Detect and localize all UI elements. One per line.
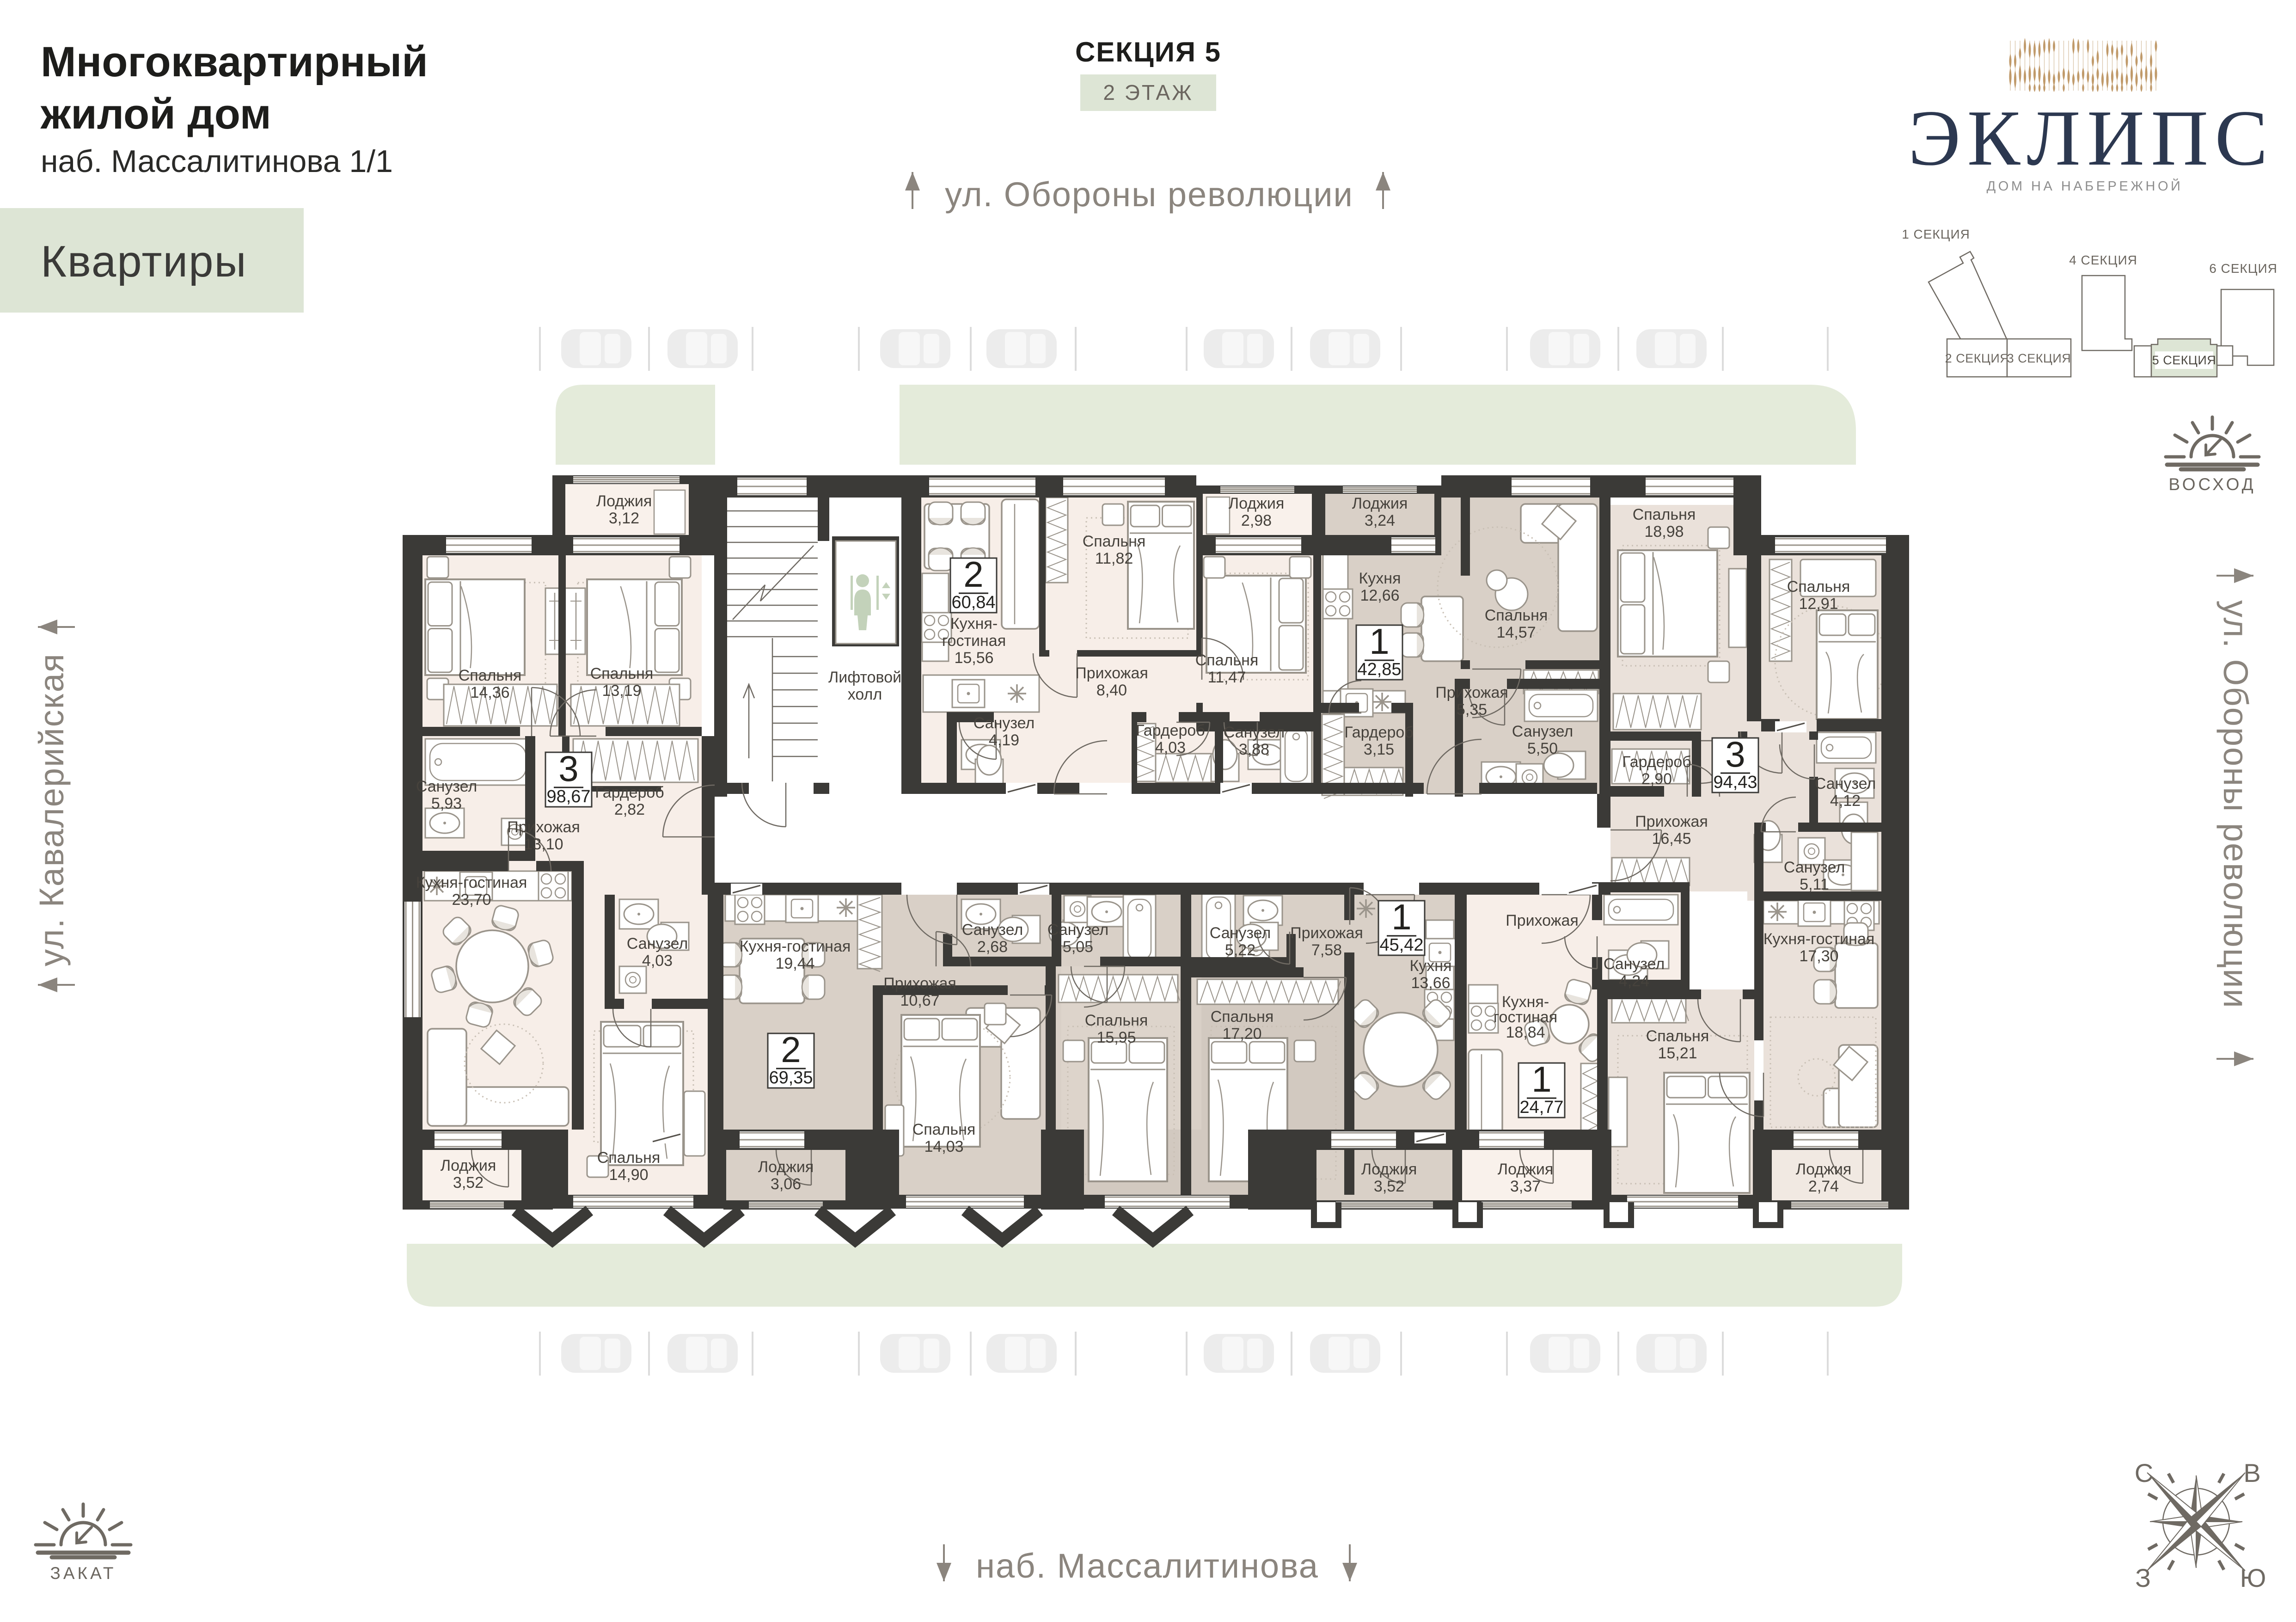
svg-text:12,66: 12,66 [1360, 587, 1399, 604]
svg-text:Спальня: Спальня [597, 1149, 661, 1167]
svg-text:Санузел: Санузел [1604, 955, 1665, 973]
svg-text:1: 1 [1391, 897, 1411, 937]
svg-text:холл: холл [848, 686, 882, 703]
svg-text:Спальня: Спальня [1646, 1027, 1709, 1045]
svg-text:Спальня: Спальня [1083, 533, 1146, 550]
svg-text:5,11: 5,11 [1800, 876, 1829, 893]
svg-text:Спальня: Спальня [459, 667, 522, 684]
svg-text:ЗАКАТ: ЗАКАТ [50, 1564, 116, 1583]
svg-text:Спальня: Спальня [1787, 578, 1850, 596]
svg-text:3,52: 3,52 [1374, 1178, 1404, 1195]
svg-text:Прихожая: Прихожая [507, 818, 580, 836]
svg-text:17,20: 17,20 [1222, 1025, 1261, 1043]
svg-text:23,70: 23,70 [452, 891, 491, 909]
svg-text:98,67: 98,67 [546, 787, 590, 806]
svg-text:13,19: 13,19 [602, 682, 641, 700]
svg-text:6 СЕКЦИЯ: 6 СЕКЦИЯ [2209, 261, 2278, 276]
svg-text:1: 1 [1369, 621, 1389, 662]
svg-text:4 СЕКЦИЯ: 4 СЕКЦИЯ [2069, 253, 2137, 267]
svg-text:3: 3 [1725, 734, 1745, 774]
svg-text:Кухня-гостиная: Кухня-гостиная [1763, 930, 1875, 948]
svg-text:15,21: 15,21 [1658, 1044, 1697, 1062]
svg-text:5 СЕКЦИЯ: 5 СЕКЦИЯ [2152, 353, 2216, 367]
svg-text:5,93: 5,93 [431, 795, 462, 812]
svg-text:45,42: 45,42 [1379, 935, 1423, 955]
svg-text:ул. Кавалерийская: ул. Кавалерийская [32, 653, 71, 966]
svg-text:14,90: 14,90 [609, 1166, 648, 1184]
svg-text:Лоджия: Лоджия [596, 492, 652, 510]
svg-text:3,12: 3,12 [609, 510, 639, 527]
svg-text:2,68: 2,68 [977, 938, 1008, 956]
svg-text:Кухня-гостиная: Кухня-гостиная [416, 874, 527, 891]
svg-text:Лоджия: Лоджия [1361, 1161, 1417, 1178]
svg-text:Лоджия: Лоджия [1796, 1161, 1851, 1178]
svg-text:4,19: 4,19 [989, 731, 1019, 749]
svg-text:Ю: Ю [2240, 1563, 2266, 1592]
svg-text:2,74: 2,74 [1808, 1178, 1839, 1195]
svg-text:Санузел: Санузел [974, 714, 1035, 732]
svg-text:4,12: 4,12 [1830, 792, 1861, 810]
svg-text:наб. Массалитинова 1/1: наб. Массалитинова 1/1 [41, 144, 393, 179]
svg-text:Кухня-: Кухня- [950, 615, 998, 633]
svg-text:16,45: 16,45 [1652, 830, 1691, 848]
svg-text:2,90: 2,90 [1641, 770, 1672, 788]
svg-text:13,66: 13,66 [1411, 974, 1450, 992]
svg-text:Спальня: Спальня [1633, 506, 1696, 523]
svg-text:ЭКЛИПС: ЭКЛИПС [1908, 94, 2274, 182]
svg-text:2 ЭТАЖ: 2 ЭТАЖ [1103, 80, 1193, 104]
svg-text:ул. Обороны революции: ул. Обороны революции [2216, 600, 2255, 1009]
svg-text:Кухня: Кухня [1410, 957, 1452, 975]
svg-text:Санузел: Санузел [962, 921, 1023, 939]
svg-text:5,05: 5,05 [1063, 938, 1093, 956]
svg-text:14,36: 14,36 [470, 684, 509, 701]
svg-text:3,88: 3,88 [1239, 741, 1269, 758]
svg-text:15,56: 15,56 [954, 649, 993, 667]
svg-text:12,91: 12,91 [1799, 595, 1838, 613]
svg-text:2: 2 [963, 554, 983, 595]
svg-text:Санузел: Санузел [1224, 724, 1285, 741]
svg-text:Санузел: Санузел [1210, 924, 1271, 942]
svg-text:3 СЕКЦИЯ: 3 СЕКЦИЯ [2007, 351, 2071, 365]
svg-text:60,84: 60,84 [951, 593, 995, 612]
svg-text:Лоджия: Лоджия [1352, 495, 1408, 512]
svg-text:5,22: 5,22 [1225, 941, 1255, 959]
svg-text:Санузел: Санузел [627, 935, 688, 952]
svg-text:3,15: 3,15 [1364, 741, 1394, 758]
svg-text:11,82: 11,82 [1095, 550, 1133, 567]
svg-text:Прихожая: Прихожая [1290, 924, 1363, 942]
svg-text:8,40: 8,40 [1096, 682, 1127, 699]
svg-text:гостиная: гостиная [942, 632, 1006, 650]
svg-text:ул. Обороны революции: ул. Обороны революции [945, 175, 1353, 214]
svg-text:Кухня-гостиная: Кухня-гостиная [740, 938, 851, 955]
svg-text:24,77: 24,77 [1519, 1098, 1563, 1117]
svg-text:2,82: 2,82 [614, 801, 645, 818]
svg-text:18,98: 18,98 [1644, 523, 1684, 541]
svg-text:С: С [2135, 1458, 2153, 1487]
svg-text:ДОМ НА НАБЕРЕЖНОЙ: ДОМ НА НАБЕРЕЖНОЙ [1987, 178, 2183, 194]
svg-text:10,67: 10,67 [900, 992, 939, 1009]
svg-text:17,30: 17,30 [1799, 947, 1838, 965]
svg-text:Прихожая: Прихожая [1075, 664, 1148, 682]
svg-text:Гардероб: Гардероб [1622, 753, 1691, 771]
svg-text:Прихожая: Прихожая [883, 975, 956, 992]
svg-text:3: 3 [558, 748, 578, 789]
svg-text:З: З [2135, 1563, 2151, 1592]
svg-text:наб. Массалитинова: наб. Массалитинова [976, 1547, 1319, 1585]
svg-text:Лифтовой: Лифтовой [828, 669, 901, 686]
svg-text:ВОСХОД: ВОСХОД [2168, 475, 2256, 494]
svg-text:14,03: 14,03 [924, 1138, 963, 1155]
svg-text:3,52: 3,52 [453, 1174, 484, 1192]
svg-text:Многоквартирный: Многоквартирный [41, 38, 428, 86]
svg-text:4,24: 4,24 [1619, 972, 1649, 990]
svg-text:2,98: 2,98 [1241, 512, 1272, 529]
svg-text:Прихожая: Прихожая [1435, 684, 1508, 701]
svg-text:Гардероб: Гардероб [1344, 724, 1414, 741]
svg-text:Санузел: Санузел [1784, 859, 1845, 876]
svg-text:жилой дом: жилой дом [40, 91, 271, 138]
svg-text:5,35: 5,35 [1457, 701, 1487, 719]
svg-text:Спальня: Спальня [1485, 607, 1548, 624]
svg-text:Лоджия: Лоджия [758, 1158, 814, 1176]
svg-text:Лоджия: Лоджия [1498, 1161, 1553, 1178]
svg-text:Спальня: Спальня [912, 1121, 976, 1138]
svg-text:69,35: 69,35 [769, 1068, 813, 1087]
svg-text:2: 2 [781, 1029, 801, 1070]
svg-text:42,85: 42,85 [1357, 660, 1401, 679]
svg-text:СЕКЦИЯ 5: СЕКЦИЯ 5 [1075, 37, 1221, 68]
svg-text:3,37: 3,37 [1510, 1178, 1541, 1195]
svg-text:3,24: 3,24 [1365, 512, 1395, 529]
svg-text:Прихожая: Прихожая [1506, 912, 1579, 929]
svg-text:5,50: 5,50 [1527, 740, 1558, 757]
svg-text:11,47: 11,47 [1208, 669, 1246, 686]
svg-text:13,10: 13,10 [524, 836, 563, 853]
svg-text:Спальня: Спальня [1195, 651, 1259, 669]
svg-text:2 СЕКЦИЯ: 2 СЕКЦИЯ [1945, 351, 2009, 365]
svg-text:3,06: 3,06 [771, 1175, 801, 1193]
svg-text:18,84: 18,84 [1506, 1024, 1545, 1041]
svg-text:Кухня: Кухня [1359, 570, 1401, 587]
svg-text:7,58: 7,58 [1311, 941, 1342, 959]
svg-text:Квартиры: Квартиры [41, 237, 247, 286]
svg-text:В: В [2243, 1458, 2260, 1487]
svg-text:Прихожая: Прихожая [1635, 813, 1708, 830]
svg-text:4,03: 4,03 [1155, 739, 1186, 756]
svg-text:Гардероб: Гардероб [595, 784, 664, 801]
svg-text:15,95: 15,95 [1096, 1029, 1136, 1046]
svg-text:Санузел: Санузел [1815, 775, 1876, 793]
svg-text:Санузел: Санузел [1512, 723, 1573, 740]
svg-text:Санузел: Санузел [416, 778, 477, 795]
svg-text:Санузел: Санузел [1047, 921, 1108, 939]
svg-text:94,43: 94,43 [1713, 773, 1757, 792]
svg-text:Спальня: Спальня [1211, 1008, 1274, 1026]
svg-text:Спальня: Спальня [1085, 1012, 1148, 1029]
svg-text:Лоджия: Лоджия [1229, 495, 1284, 512]
svg-text:19,44: 19,44 [775, 955, 814, 972]
svg-text:Лоджия: Лоджия [441, 1157, 496, 1174]
svg-text:4,03: 4,03 [642, 952, 673, 970]
svg-text:1 СЕКЦИЯ: 1 СЕКЦИЯ [1902, 227, 1970, 241]
svg-text:Гардероб: Гардероб [1136, 722, 1205, 739]
svg-text:14,57: 14,57 [1496, 624, 1536, 641]
svg-text:Спальня: Спальня [590, 665, 654, 682]
svg-text:1: 1 [1531, 1059, 1551, 1100]
